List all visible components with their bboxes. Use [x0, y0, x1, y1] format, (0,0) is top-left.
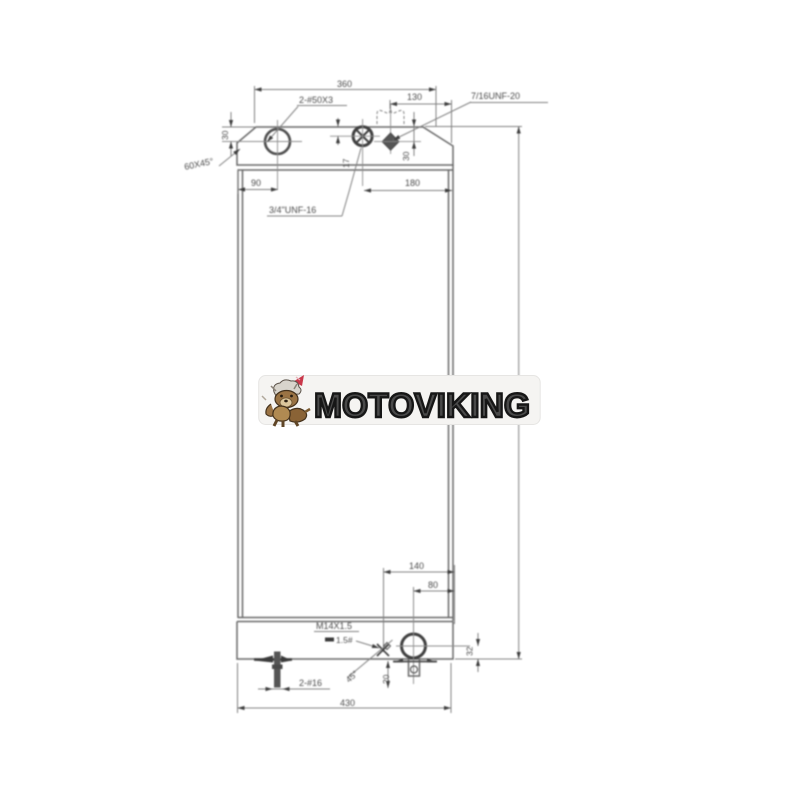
svg-text:M14X1.5: M14X1.5: [316, 621, 352, 631]
svg-text:1.5#: 1.5#: [336, 635, 353, 645]
svg-text:140: 140: [409, 561, 424, 571]
svg-text:30: 30: [220, 130, 230, 140]
svg-text:80: 80: [428, 580, 438, 590]
svg-text:2-#50X3: 2-#50X3: [299, 95, 333, 105]
svg-text:180: 180: [405, 178, 420, 188]
svg-text:90: 90: [251, 178, 261, 188]
svg-text:30: 30: [401, 151, 411, 161]
svg-text:20: 20: [381, 674, 391, 684]
svg-text:17: 17: [341, 158, 351, 168]
svg-text:360: 360: [337, 79, 352, 89]
svg-text:430: 430: [340, 698, 355, 708]
svg-text:45°: 45°: [344, 668, 360, 684]
svg-text:32: 32: [465, 646, 475, 656]
svg-text:2-#16: 2-#16: [299, 678, 322, 688]
svg-text:MOTOVIKING: MOTOVIKING: [314, 387, 530, 425]
svg-text:60X45°: 60X45°: [183, 156, 214, 172]
svg-text:3/4"UNF-16: 3/4"UNF-16: [269, 205, 316, 215]
svg-text:7/16UNF-20: 7/16UNF-20: [471, 91, 520, 101]
svg-text:130: 130: [407, 92, 422, 102]
